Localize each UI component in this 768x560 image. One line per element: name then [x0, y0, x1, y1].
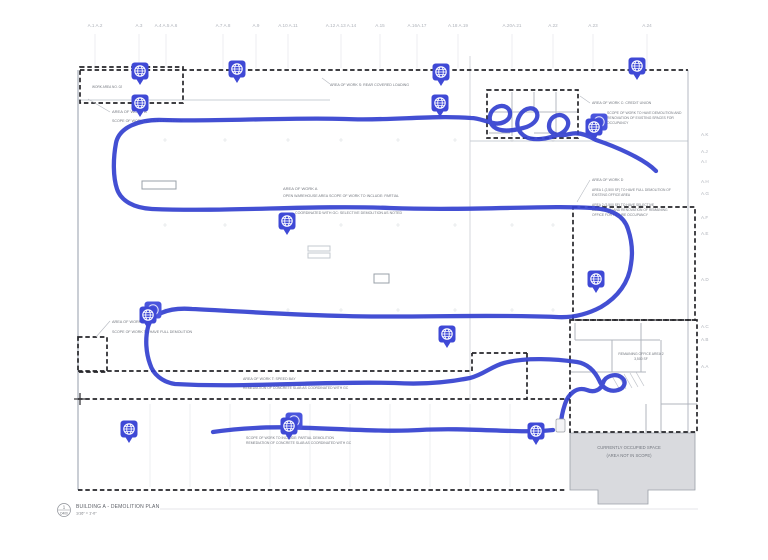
floorplan-canvas: A.1 A.2A.3A.4 A.5 A.6A.7 A.8A.9A.10 A.11…	[0, 0, 768, 560]
grid-label: A.24	[642, 23, 652, 28]
grid-label: A.F	[701, 215, 708, 220]
grid-label: A.7 A.8	[216, 23, 231, 28]
photo-pin[interactable]	[433, 64, 450, 87]
drawing-title: BUILDING A - DEMOLITION PLAN	[76, 504, 160, 510]
title-block: 1 D400 BUILDING A - DEMOLITION PLAN 1/16…	[58, 504, 699, 517]
walk-path-line	[213, 427, 553, 432]
plan-annotation: AREA 2 (3,500 SF) TO HAVE SELECTIVE	[592, 203, 655, 207]
photo-pin[interactable]	[132, 63, 149, 86]
plan-annotation: CURRENTLY OCCUPIED SPACE	[597, 445, 661, 450]
grid-label: A.K	[701, 132, 709, 137]
plan-annotation: OPEN WAREHOUSE AREA SCOPE OF WORK TO INC…	[283, 194, 399, 198]
grid-label: A.I	[701, 159, 707, 164]
photo-pin[interactable]	[528, 423, 545, 446]
drawing-scale: 1/16" = 1'-0"	[76, 512, 97, 516]
grid-label: A.G	[701, 191, 709, 196]
photo-pin[interactable]	[588, 271, 605, 294]
equipment-box	[142, 181, 176, 189]
grid-label: A.3	[136, 23, 143, 28]
plan-annotation: RENOVATION OF EXISTING SPACES FOR	[607, 116, 674, 120]
grid-labels-right: A.KA.JA.IA.HA.GA.FA.EA.DA.CA.BA.A	[701, 132, 709, 369]
plan-annotation: REMAINING OFFICE AREA 2	[618, 352, 663, 356]
grid-label: A.12 A.13 A.14	[326, 23, 357, 28]
detail-number: 1	[63, 505, 66, 510]
keynote-box	[374, 274, 389, 283]
grid-label: A.J	[701, 149, 708, 154]
plan-annotation: 3,500 SF	[634, 357, 648, 361]
grid-label: A.B	[701, 337, 708, 342]
photo-pin[interactable]	[432, 95, 449, 118]
plan-annotation: AREA OF WORK D	[592, 178, 624, 182]
plan-annotation: OCCUPANCY	[607, 121, 629, 125]
grid-label: A.E	[701, 231, 708, 236]
plan-annotation: AREA OF WORK T: SPEED BAY	[243, 377, 296, 381]
photo-pin[interactable]	[439, 326, 456, 349]
grid-label: A.18 A.19	[448, 23, 468, 28]
photo-pin[interactable]	[279, 213, 296, 236]
plan-annotation: AREA OF WORK A	[283, 186, 318, 191]
plan-annotation: (AREA NOT IN SCOPE)	[606, 453, 652, 458]
plan-annotation: AREA OF WORK C: CREDIT UNION	[592, 101, 652, 105]
grid-label: A.A	[701, 364, 709, 369]
grid-labels-top: A.1 A.2A.3A.4 A.5 A.6A.7 A.8A.9A.10 A.11…	[88, 23, 653, 28]
grid-label: A.20A.21	[503, 23, 522, 28]
plan-annotation: REMEDIATION OF CONCRETE SLAB AS COORDINA…	[246, 441, 352, 445]
plan-annotation: WORK AREA NO. 02	[92, 85, 122, 89]
plan-annotation: AREA OF WORK S: REAR COVERED LOADING	[330, 83, 409, 87]
grid-label: A.15	[375, 23, 385, 28]
plan-annotation: COORDINATED WITH GC: SELECTIVE DEMOLITIO…	[295, 211, 403, 215]
walk-path	[114, 106, 656, 432]
grid-label: A.22	[548, 23, 558, 28]
sheet-reference: D400	[60, 512, 68, 516]
grid-label: A.10 A.11	[278, 23, 298, 28]
grid-label: A.16A.17	[408, 23, 427, 28]
photo-pin[interactable]	[629, 58, 646, 81]
plan-annotation: SCOPE OF WORK TO HAVE FULL DEMOLITION	[112, 330, 193, 334]
plan-annotation: SCOPE OF WORK TO HAVE DEMOLITION AND	[607, 111, 682, 115]
walk-path-line	[114, 106, 656, 425]
grid-label: A.C	[701, 324, 709, 329]
plan-annotation: EXISTING OFFICE AREA	[592, 193, 631, 197]
demolition-plan-drawing: A.1 A.2A.3A.4 A.5 A.6A.7 A.8A.9A.10 A.11…	[0, 0, 768, 560]
grid-label: A.D	[701, 277, 709, 282]
plan-annotation: AREA 1 (2,500 SF) TO HAVE FULL DEMOLITIO…	[592, 188, 671, 192]
section-cross-marker	[74, 393, 86, 405]
grid-label: A.4 A.5 A.6	[155, 23, 178, 28]
walk-path-end-cap	[556, 419, 565, 432]
occupied-space-region	[570, 433, 695, 504]
grid-label: A.H	[701, 179, 709, 184]
grid-label: A.23	[588, 23, 598, 28]
grid-label: A.1 A.2	[88, 23, 103, 28]
grid-label: A.9	[253, 23, 260, 28]
photo-pin[interactable]	[140, 302, 162, 330]
photo-pin[interactable]	[121, 421, 138, 444]
photo-pin[interactable]	[229, 61, 246, 84]
